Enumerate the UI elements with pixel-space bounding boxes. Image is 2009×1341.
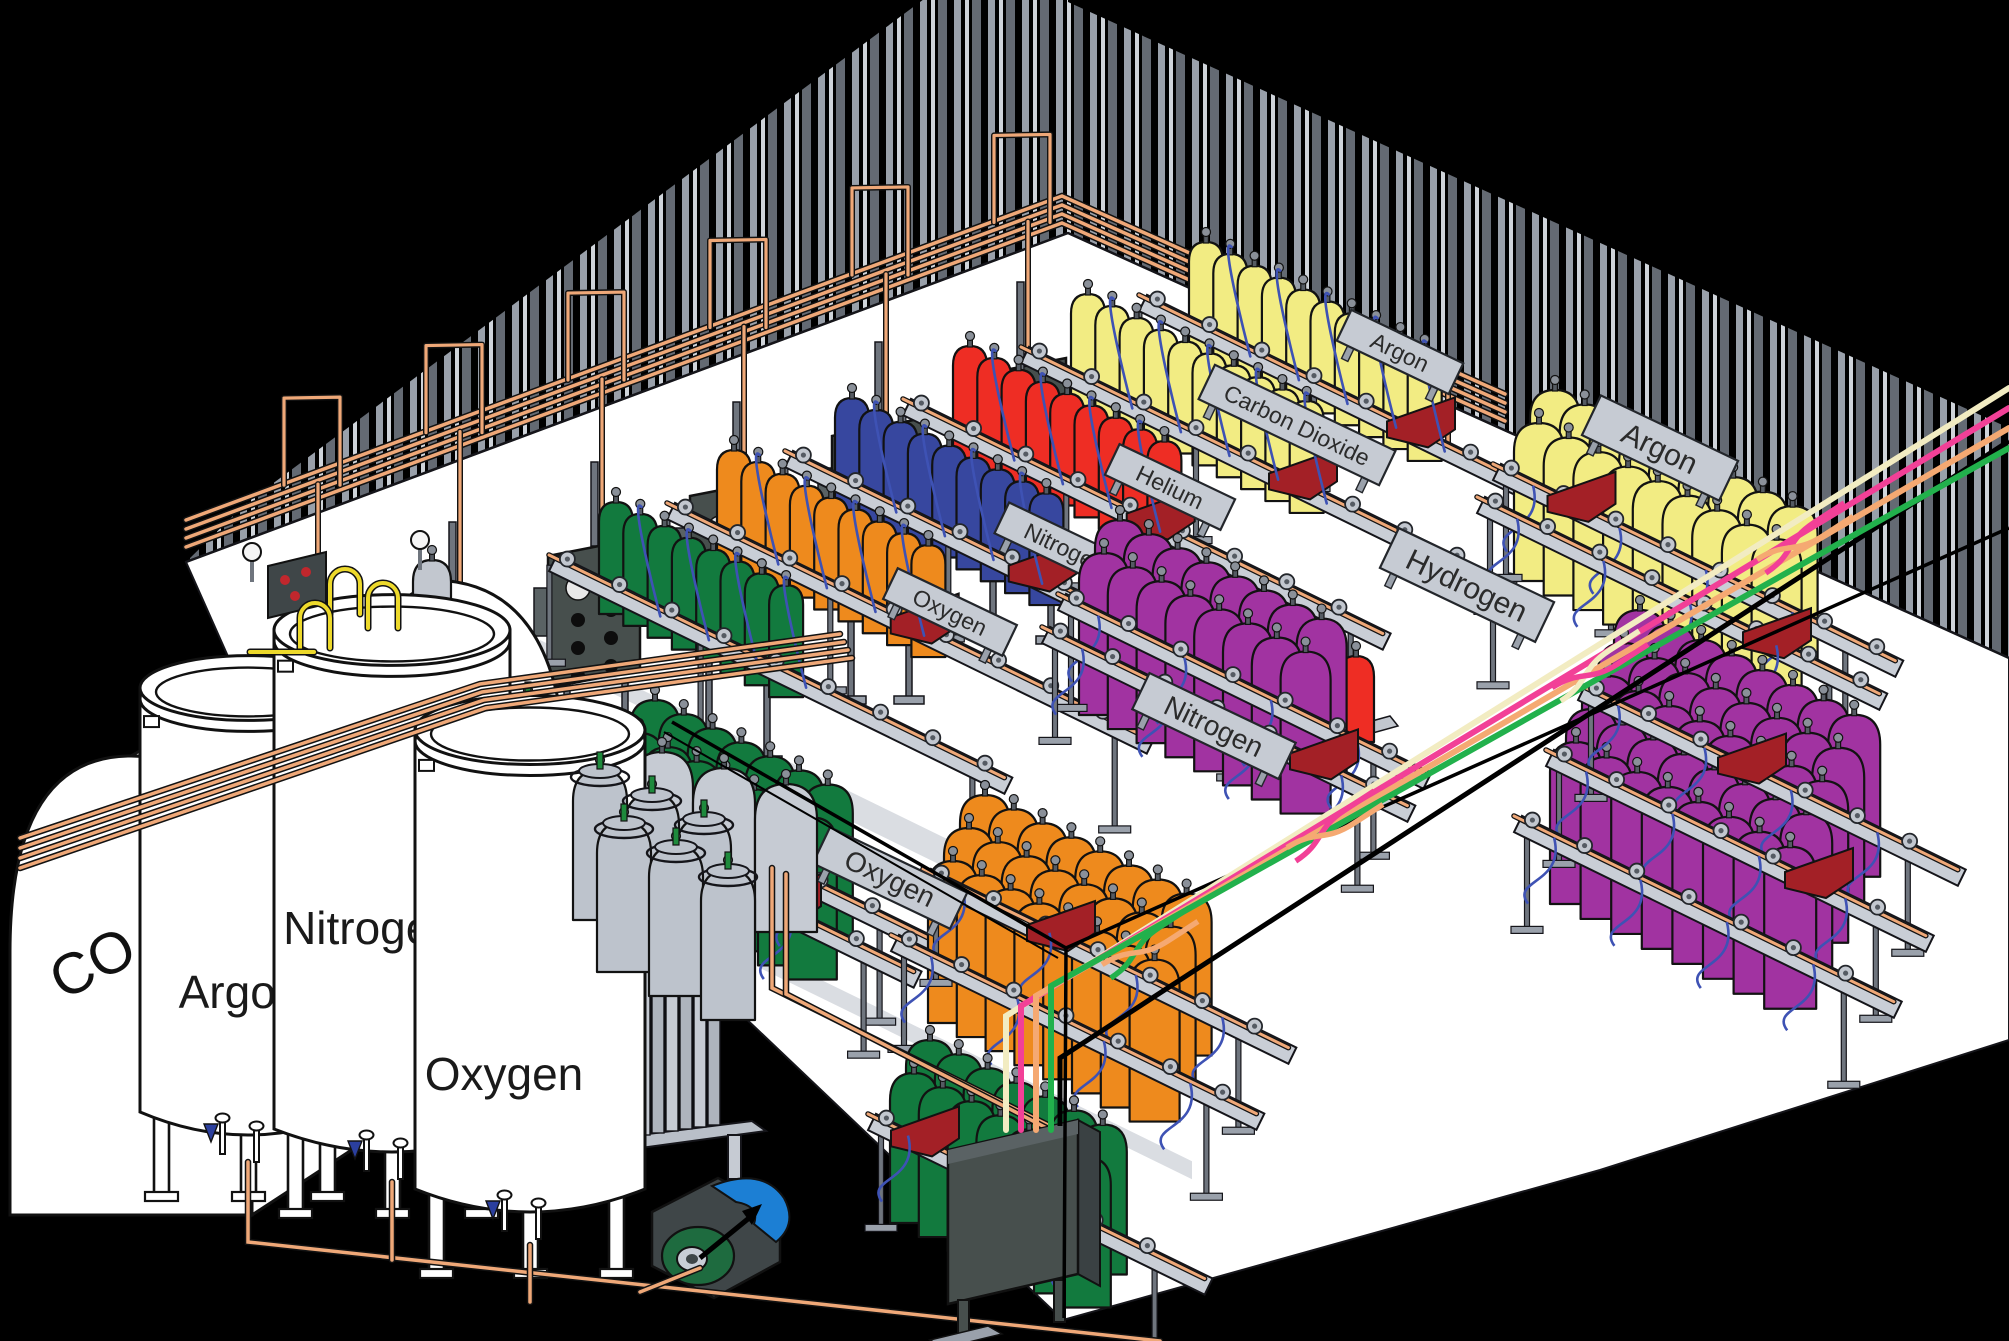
rail-valve-hub: [1493, 498, 1498, 503]
rail-valve-hub: [1246, 451, 1251, 456]
cylinder-valve: [1098, 1110, 1107, 1119]
manifold-port: [571, 613, 585, 627]
dewar-valve-green: [597, 752, 603, 769]
cylinder-valve: [1665, 691, 1674, 700]
rail-valve-hub: [1907, 839, 1912, 844]
cylinder-valve: [1352, 642, 1361, 651]
cryogenic-dewar: [699, 852, 757, 1020]
rail-valve-hub: [1110, 654, 1115, 659]
rail-valve-hub: [1530, 817, 1535, 822]
rail-valve-hub: [991, 896, 996, 901]
cylinder-valve: [1080, 870, 1089, 879]
pump-inlet: [686, 1254, 698, 1264]
cylinder-valve: [1231, 562, 1240, 571]
rail-leg: [861, 957, 866, 1053]
cylinder-valve: [1636, 596, 1645, 605]
rail-valve-hub: [1718, 828, 1723, 833]
rail-valve-hub: [1284, 579, 1289, 584]
cylinder-valve: [1535, 409, 1544, 418]
cylinder-valve: [1109, 884, 1118, 893]
cylinder-valve: [983, 1054, 992, 1063]
tank-foot: [311, 1192, 344, 1201]
tank-fitting-top: [532, 1199, 546, 1208]
rail-valve-hub: [1634, 868, 1639, 873]
rail-valve-hub: [1259, 347, 1264, 352]
cylinder-valve: [949, 847, 958, 856]
rail-leg: [1841, 987, 1846, 1083]
rail-leg: [1053, 643, 1058, 739]
rail-valve-hub: [905, 503, 910, 508]
cylinder-valve: [1758, 655, 1767, 664]
cylinder-valve: [795, 756, 804, 765]
cylinder-valve: [1551, 376, 1560, 385]
dewar-valve-green: [649, 776, 655, 793]
cylinder-valve: [1272, 623, 1281, 632]
rail-valve-hub: [1074, 595, 1079, 600]
cylinder-valve: [896, 407, 905, 416]
rail-valve-hub: [839, 581, 844, 586]
cylinder-valve: [1773, 703, 1782, 712]
rail-valve-hub: [721, 633, 726, 638]
cylinder-valve: [954, 1040, 963, 1049]
tank-foot: [600, 1269, 633, 1278]
cylinder-valve: [660, 511, 669, 520]
cryogenic-dewar: [595, 804, 653, 972]
cylinder-valve: [1096, 837, 1105, 846]
cylinder-valve: [1347, 299, 1356, 308]
tank-label: Oxygen: [425, 1048, 584, 1100]
tank-foot: [420, 1269, 453, 1278]
cylinder-valve: [1014, 355, 1023, 364]
cylinder-valve: [1727, 640, 1736, 649]
cylinder-valve: [1788, 492, 1797, 501]
gauge-dial: [243, 543, 261, 561]
rail-valve-hub: [1874, 644, 1879, 649]
cylinder-valve: [1834, 733, 1843, 742]
rail-valve-hub: [1803, 788, 1808, 793]
cylinder-valve: [1181, 327, 1190, 336]
tank-ring-tab: [419, 760, 434, 771]
cylinder-valve: [981, 781, 990, 790]
rail-valve-hub: [565, 556, 570, 561]
cylinder-valve: [1317, 604, 1326, 613]
rail-valve-hub: [1545, 524, 1550, 529]
cylinder-valve: [1758, 477, 1767, 486]
rail-foot: [864, 1018, 896, 1025]
cylinder-valve: [993, 828, 1002, 837]
cylinder-valve: [1173, 534, 1182, 543]
cylinder-valve: [1202, 548, 1211, 557]
cylinder-valve: [1818, 766, 1827, 775]
rail-valve-hub: [1168, 1064, 1173, 1069]
rail-foot: [1575, 794, 1607, 801]
cylinder-valve: [1260, 576, 1269, 585]
rail-valve-hub: [919, 400, 924, 405]
tank-fitting-top: [394, 1139, 408, 1148]
cylinder-valve: [1850, 700, 1859, 709]
rail-valve-hub: [884, 1115, 889, 1120]
manifold-port: [571, 641, 585, 655]
manifold-port: [604, 631, 618, 645]
rail-valve-hub: [1350, 502, 1355, 507]
cylinder-valve: [1755, 817, 1764, 826]
cylinder-valve: [679, 700, 688, 709]
rail-valve-hub: [1075, 477, 1080, 482]
rail-valve-hub: [1116, 1039, 1121, 1044]
rail-valve-hub: [1698, 736, 1703, 741]
rail-valve-hub: [1128, 503, 1133, 508]
rail-valve-hub: [801, 452, 806, 457]
cylinder-valve: [1725, 802, 1734, 811]
rail-valve-hub: [1666, 802, 1671, 807]
panel-side: [1078, 1120, 1100, 1286]
rail-valve-hub: [1023, 451, 1028, 456]
rail-valve-hub: [1207, 322, 1212, 327]
rail-valve-hub: [1686, 894, 1691, 899]
cylinder-valve: [757, 559, 766, 568]
control-button: [301, 567, 311, 577]
rail-valve-hub: [1010, 555, 1015, 560]
cylinder-valve: [1742, 510, 1751, 519]
cylinder-valve: [1144, 520, 1153, 529]
dewar-valve-green: [621, 804, 627, 821]
cylinder-valve: [1564, 423, 1573, 432]
cylinder-valve: [778, 459, 787, 468]
cylinder-valve: [1711, 673, 1720, 682]
cylinder-valve: [1695, 706, 1704, 715]
dewar-body: [649, 846, 703, 996]
cylinder-valve: [1215, 595, 1224, 604]
rail-valve-hub: [1336, 605, 1341, 610]
rail-valve-hub: [930, 735, 935, 740]
plant-scene-svg: OxygenNitrogenHeliumCarbon DioxideArgonH…: [0, 0, 2009, 1341]
cylinder-valve: [966, 332, 975, 341]
rail-valve-hub: [971, 426, 976, 431]
rail-valve-hub: [1095, 947, 1100, 952]
cylinder-valve: [1819, 685, 1828, 694]
dewar-valve-green: [673, 828, 679, 845]
tank-foot: [145, 1192, 178, 1201]
rail-valve-hub: [1141, 399, 1146, 404]
tank-ring-tab: [144, 716, 159, 727]
rail-leg: [1204, 1099, 1209, 1195]
cylinder-valve: [1572, 728, 1581, 737]
rail-valve-hub: [1855, 813, 1860, 818]
rail-valve-hub: [1791, 945, 1796, 950]
rail-valve-hub: [853, 478, 858, 483]
rail-valve-hub: [826, 684, 831, 689]
cylinder-valve: [1132, 303, 1141, 312]
cylinder-valve: [1786, 832, 1795, 841]
cylinder-valve: [823, 770, 832, 779]
control-button: [280, 575, 290, 585]
cylinder-valve: [766, 742, 775, 751]
tank-ring-tab: [278, 661, 293, 672]
cylinder-valve: [1137, 898, 1146, 907]
cylinder-valve: [1663, 772, 1672, 781]
panel-side-wing: [534, 588, 547, 636]
cylinder-valve: [1084, 280, 1093, 289]
cylinder-valve: [1067, 823, 1076, 832]
rail-valve-hub: [1193, 425, 1198, 430]
rail-leg: [1152, 1264, 1157, 1341]
cylinder-valve: [730, 436, 739, 445]
rail-valve-hub: [787, 555, 792, 560]
panel-post-top: [591, 462, 598, 546]
cylinder-valve: [1100, 539, 1109, 548]
cylinder-valve: [612, 488, 621, 497]
rail-valve-hub: [1145, 1243, 1150, 1248]
cylinder-valve: [1035, 889, 1044, 898]
rail-valve-hub: [1806, 652, 1811, 657]
rail-valve-hub: [1613, 516, 1618, 521]
cylinder-valve: [1063, 379, 1072, 388]
rail-valve-hub: [996, 658, 1001, 663]
rail-foot: [1055, 704, 1087, 711]
cylinder-valve: [1250, 251, 1259, 260]
dewar-body: [701, 870, 755, 1020]
rail-foot: [1543, 860, 1575, 867]
cylinder-valve: [1301, 637, 1310, 646]
rail-valve-hub: [1232, 554, 1237, 559]
rail-foot: [1222, 1127, 1254, 1134]
rail-valve-hub: [1155, 296, 1160, 301]
vaporizer-leg: [728, 1135, 741, 1179]
cylinder-valve: [1299, 275, 1308, 284]
cylinder-valve: [737, 728, 746, 737]
rail-valve-hub: [1614, 777, 1619, 782]
cylinder-valve: [977, 861, 986, 870]
rail-valve-hub: [1283, 698, 1288, 703]
cylinder-valve: [709, 535, 718, 544]
tank-fitting-top: [360, 1131, 374, 1140]
cylinder-valve: [1182, 879, 1191, 888]
tank-fitting-top: [498, 1191, 512, 1200]
cylinder-valve: [848, 384, 857, 393]
rail-valve-hub: [1468, 450, 1473, 455]
cylinder-valve: [1742, 688, 1751, 697]
rail-valve-hub: [1011, 987, 1016, 992]
rail-valve-hub: [1594, 685, 1599, 690]
rail-valve-hub: [957, 529, 962, 534]
rail-valve-hub: [1739, 920, 1744, 925]
cylinder-valve: [1186, 581, 1195, 590]
rail-valve-hub: [1089, 374, 1094, 379]
rail-valve-hub: [1335, 723, 1340, 728]
rail-foot: [1828, 1081, 1860, 1088]
rail-foot: [1039, 737, 1071, 744]
cylinder-valve: [1803, 718, 1812, 727]
rail-valve-hub: [1771, 854, 1776, 859]
rail-valve-hub: [870, 903, 875, 908]
cylinder-valve: [1288, 590, 1297, 599]
panel-foot: [894, 696, 924, 704]
cylinder-valve: [926, 1026, 935, 1035]
cylinder-valve: [1633, 757, 1642, 766]
cylinder-valve: [1787, 751, 1796, 760]
panel-post-top: [1017, 282, 1024, 366]
rail-valve-hub: [617, 582, 622, 587]
dewar-valve-green: [701, 800, 707, 817]
rail-foot: [1511, 926, 1543, 933]
cylinder-valve: [1022, 842, 1031, 851]
cylinder-valve: [945, 431, 954, 440]
cylinder-valve: [1580, 390, 1589, 399]
rail-valve-hub: [982, 761, 987, 766]
rail-valve-hub: [735, 530, 740, 535]
rail-leg: [547, 565, 552, 661]
rail-valve-hub: [1058, 628, 1063, 633]
cylinder-valve: [1697, 625, 1706, 634]
cylinder-valve: [1128, 553, 1137, 562]
dewar-valve-green: [725, 852, 731, 869]
rail-foot: [865, 1224, 897, 1231]
cylinder-valve: [1111, 403, 1120, 412]
cylinder-valve: [1229, 351, 1238, 360]
rail-valve-hub: [1582, 843, 1587, 848]
rail-foot: [1190, 1193, 1222, 1200]
rail-leg: [1525, 832, 1530, 928]
rail-valve-hub: [1387, 749, 1392, 754]
rail-foot: [920, 979, 952, 986]
cylinder-valve: [1694, 787, 1703, 796]
cylinder-valve: [782, 770, 791, 779]
rail-leg: [879, 1130, 884, 1226]
rail-foot: [1477, 682, 1509, 689]
rail-foot: [1099, 826, 1131, 833]
cylinder-valve: [1116, 506, 1125, 515]
cylinder-valve: [658, 738, 667, 747]
rail-valve-hub: [1822, 619, 1827, 624]
cylinder-valve: [1681, 658, 1690, 667]
rail-valve-hub: [1126, 621, 1131, 626]
cylinder-valve: [428, 546, 437, 555]
rail-valve-hub: [1649, 575, 1654, 580]
rail-valve-hub: [878, 710, 883, 715]
cylinder-valve: [708, 714, 717, 723]
rail-valve-hub: [1843, 971, 1848, 976]
rail-valve-hub: [1311, 373, 1316, 378]
rail-valve-hub: [1148, 973, 1153, 978]
rail-valve-hub: [1178, 646, 1183, 651]
rail-valve-hub: [1252, 1024, 1257, 1029]
cylinder-valve: [1038, 809, 1047, 818]
rail-valve-hub: [669, 607, 674, 612]
rail-valve-hub: [1364, 399, 1369, 404]
control-button: [290, 591, 300, 601]
cylinder-valve: [827, 483, 836, 492]
rail-valve-hub: [1562, 751, 1567, 756]
cylinder-valve: [1125, 851, 1134, 860]
cylinder-valve: [1396, 323, 1405, 332]
rail-valve-hub: [1509, 465, 1514, 470]
dewar-body: [597, 822, 651, 972]
gas-plant-illustration: OxygenNitrogenHeliumCarbon DioxideArgonH…: [0, 0, 2009, 1341]
cylinder-valve: [1160, 427, 1169, 436]
cylinder-valve: [1070, 1096, 1079, 1105]
tank-fitting-top: [216, 1114, 230, 1123]
rail-foot: [1892, 949, 1924, 956]
rail-leg: [1112, 732, 1117, 828]
rail-leg: [902, 951, 907, 1047]
cylinder-valve: [1051, 856, 1060, 865]
cylinder-valve: [1726, 721, 1735, 730]
rail-valve-hub: [907, 936, 912, 941]
rail-valve-hub: [1037, 348, 1042, 353]
cylinder-valve: [965, 814, 974, 823]
cylinder-valve: [993, 455, 1002, 464]
tank-fitting-top: [250, 1122, 264, 1131]
cryogenic-dewar: [647, 828, 705, 996]
cylinder-valve: [1202, 228, 1211, 237]
rail-valve-hub: [683, 504, 688, 509]
rail-valve-hub: [1200, 998, 1205, 1003]
cylinder-valve: [1009, 795, 1018, 804]
rail-foot: [848, 1051, 880, 1058]
rail-valve-hub: [1875, 905, 1880, 910]
rail-valve-hub: [854, 936, 859, 941]
cylinder-valve: [1789, 670, 1798, 679]
rail-valve-hub: [1597, 549, 1602, 554]
cylinder-valve: [1278, 375, 1287, 384]
cylinder-valve: [1244, 609, 1253, 618]
cylinder-valve: [924, 531, 933, 540]
rail-valve-hub: [1665, 542, 1670, 547]
tank-foot: [279, 1209, 312, 1218]
gauge-dial: [411, 531, 429, 549]
cylinder-valve: [1157, 567, 1166, 576]
rail-valve-hub: [1220, 1090, 1225, 1095]
cylinder-valve: [1153, 865, 1162, 874]
rail-valve-hub: [1230, 672, 1235, 677]
rail-valve-hub: [1646, 711, 1651, 716]
rail-foot: [1341, 885, 1373, 892]
cylinder-valve: [875, 507, 884, 516]
rail-valve-hub: [1858, 677, 1863, 682]
cylinder-valve: [1006, 875, 1015, 884]
rail-valve-hub: [959, 962, 964, 967]
rail-foot: [1860, 1015, 1892, 1022]
cylinder-valve: [1042, 479, 1051, 488]
